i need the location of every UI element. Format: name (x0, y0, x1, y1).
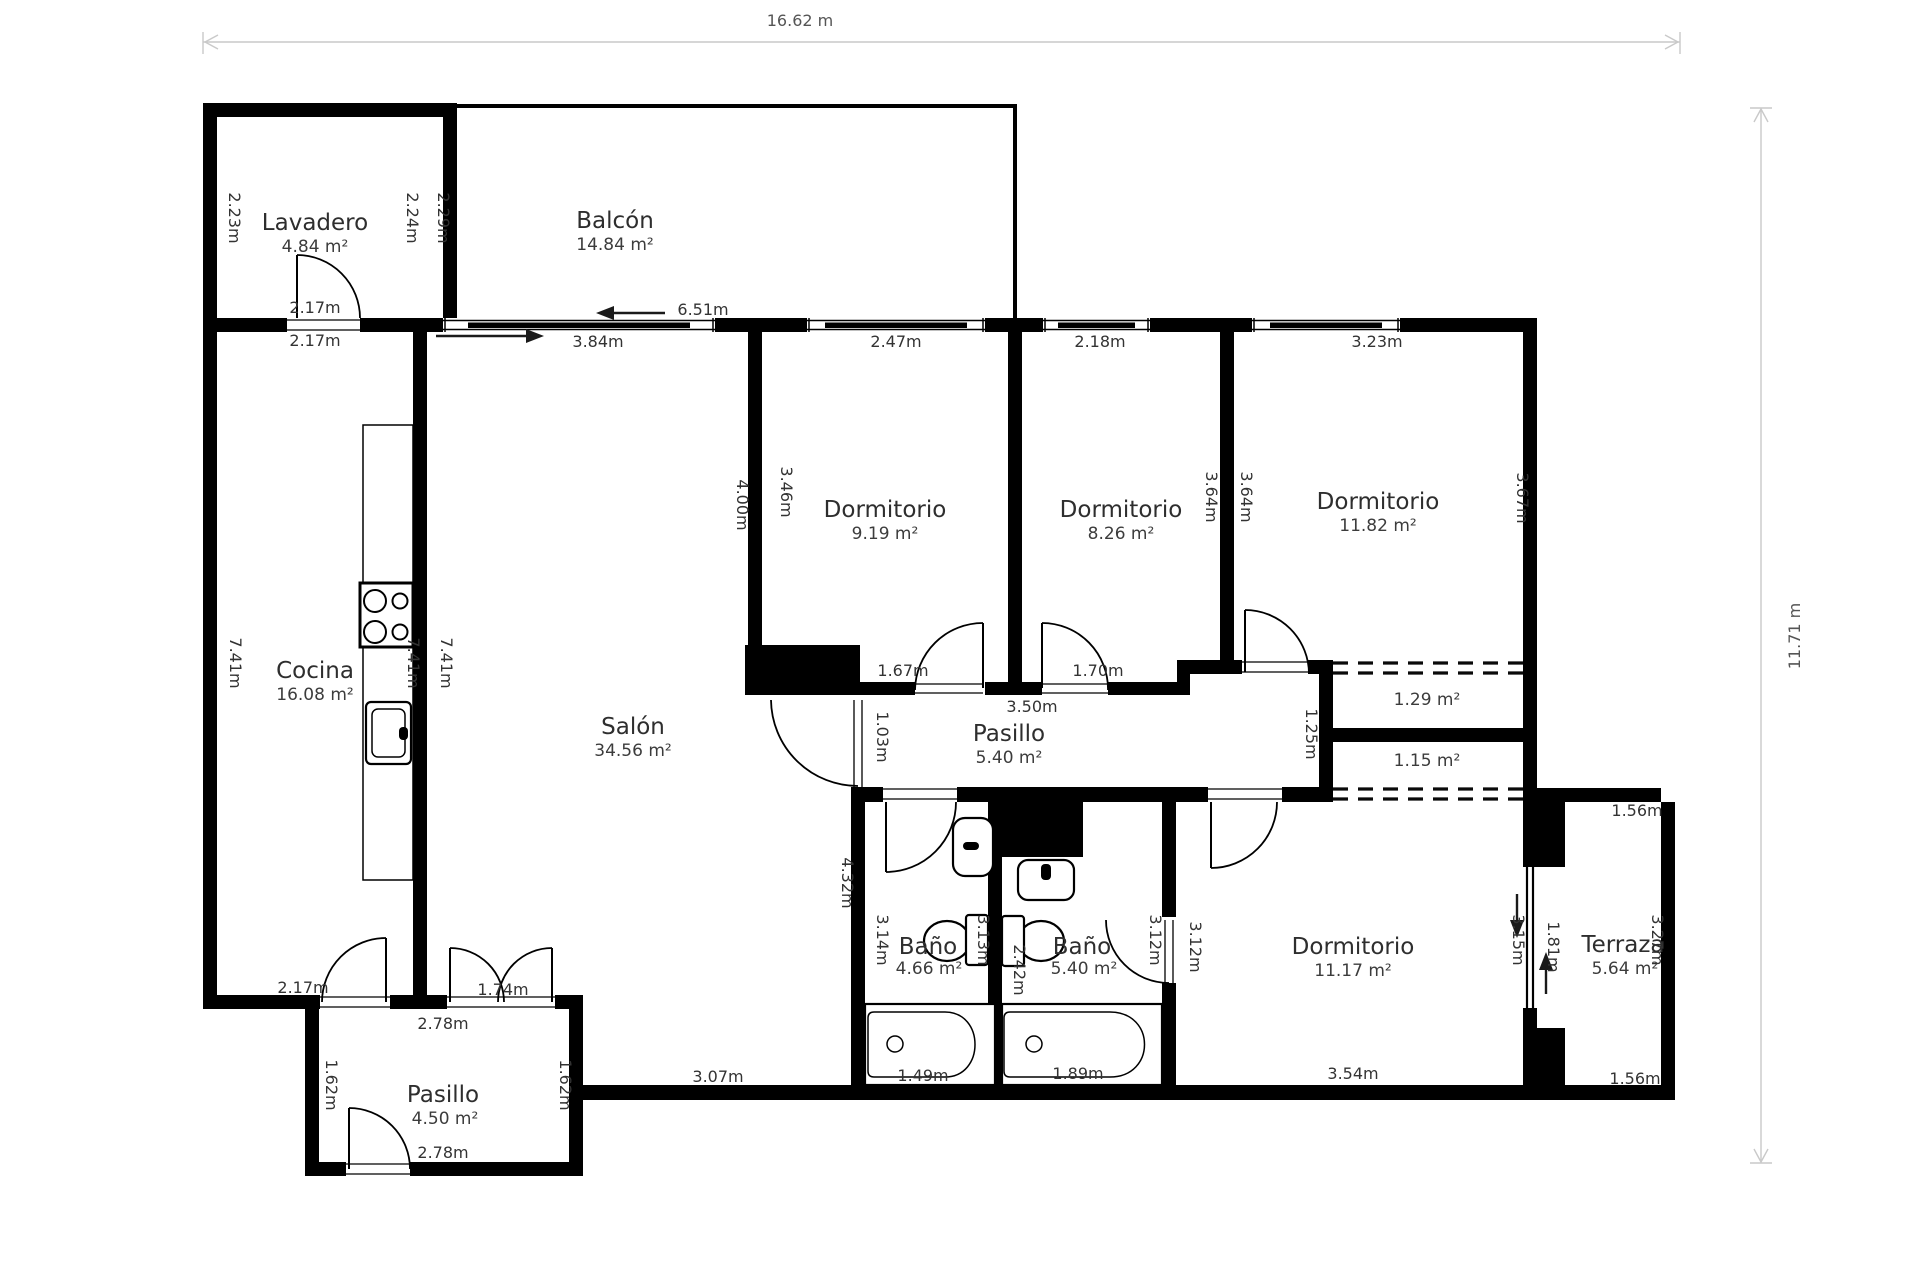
balcony-slide-arrow-right (436, 329, 544, 343)
window-salon-slider (443, 318, 715, 332)
dim-label: 7.41m (437, 637, 456, 688)
dim-label: 2.18m (1074, 332, 1125, 351)
dim-label: 3.64m (1237, 471, 1256, 522)
door-dormitorio-4 (1208, 789, 1282, 868)
room-area: 4.66 m² (896, 959, 963, 979)
window-dormitorio-1 (807, 318, 985, 332)
room-area: 9.19 m² (852, 524, 919, 544)
door-salon-pasillo (771, 700, 862, 787)
closet-area-label: 1.15 m² (1394, 751, 1461, 771)
floor-plan-canvas: 16.62 m 11.71 m (0, 0, 1920, 1280)
room-name: Cocina (276, 658, 354, 684)
room-label-pasillo-1: Pasillo5.40 m² (973, 721, 1045, 768)
room-name: Balcón (576, 208, 654, 234)
dim-label: 4.32m (838, 857, 857, 908)
room-labels: Lavadero4.84 m² Balcón14.84 m² Cocina16.… (262, 208, 1665, 1129)
room-name: Dormitorio (1060, 497, 1183, 523)
top-dimension-line (203, 32, 1680, 54)
room-label-balcon: Balcón14.84 m² (576, 208, 654, 255)
dim-label: 3.64m (1202, 471, 1221, 522)
room-label-salon: Salón34.56 m² (594, 714, 671, 761)
room-area: 4.84 m² (282, 237, 349, 257)
right-dimension-line (1750, 108, 1772, 1163)
balcony-slide-arrow-left (596, 306, 665, 320)
room-name: Dormitorio (824, 497, 947, 523)
window-lavadero (247, 103, 380, 117)
dim-label: 3.84m (572, 332, 623, 351)
room-label-lavadero: Lavadero4.84 m² (262, 210, 368, 257)
dim-label: 1.74m (477, 980, 528, 999)
room-area: 8.26 m² (1088, 524, 1155, 544)
balcony-railing-right (1013, 104, 1017, 318)
dim-label: 6.51m (677, 300, 728, 319)
dim-label: 1.81m (1544, 921, 1563, 972)
room-area: 5.40 m² (1051, 959, 1118, 979)
dim-label: 1.56m (1611, 801, 1662, 820)
dim-label: 3.67m (1513, 472, 1532, 523)
dim-label: 3.23m (1351, 332, 1402, 351)
room-label-bano-2: Baño5.40 m² (1051, 934, 1118, 979)
dim-label: 2.47m (870, 332, 921, 351)
room-area: 16.08 m² (276, 685, 353, 705)
dim-label: 2.23m (225, 192, 244, 243)
window-dormitorio-2 (1043, 318, 1150, 332)
floor-plan-page: 16.62 m 11.71 m (0, 0, 1920, 1280)
room-name: Baño (899, 934, 958, 960)
door-bano-1 (883, 789, 957, 872)
door-dormitorio-1 (915, 623, 983, 693)
door-entrance (346, 1108, 410, 1174)
room-label-dormitorio-3: Dormitorio11.82 m² (1317, 489, 1440, 536)
dim-label: 3.54m (1327, 1064, 1378, 1083)
dim-label: 3.15m (1509, 914, 1528, 965)
room-label-dormitorio-4: Dormitorio11.17 m² (1292, 934, 1415, 981)
dim-label: 1.62m (322, 1059, 341, 1110)
room-area: 34.56 m² (594, 741, 671, 761)
kitchen-sink (366, 702, 411, 764)
window-dormitorio-3 (1252, 318, 1400, 332)
dim-label: 1.56m (1609, 1069, 1660, 1088)
door-dormitorio-2 (1042, 623, 1108, 693)
dim-label: 1.62m (556, 1059, 575, 1110)
dim-label: 1.03m (873, 711, 892, 762)
room-name: Dormitorio (1317, 489, 1440, 515)
dim-label: 3.07m (692, 1067, 743, 1086)
dim-label: 2.17m (289, 331, 340, 350)
total-width-label: 16.62 m (767, 11, 833, 30)
dim-label: 2.17m (289, 298, 340, 317)
room-area: 14.84 m² (576, 235, 653, 255)
room-name: Pasillo (407, 1082, 479, 1108)
door-lavadero (287, 255, 360, 330)
total-height-label: 11.71 m (1785, 603, 1804, 669)
room-label-dormitorio-2: Dormitorio8.26 m² (1060, 497, 1183, 544)
dim-label: 7.41m (226, 637, 245, 688)
room-area: 5.40 m² (976, 748, 1043, 768)
balcony-railing-top (457, 104, 1017, 108)
dim-label: 1.25m (1302, 708, 1321, 759)
door-dormitorio-3 (1242, 610, 1309, 674)
dim-label: 2.78m (417, 1014, 468, 1033)
dim-label: 3.13m (974, 914, 993, 965)
room-label-cocina: Cocina16.08 m² (276, 658, 354, 705)
dim-label: 1.49m (897, 1066, 948, 1085)
room-name: Lavadero (262, 210, 368, 236)
room-area: 4.50 m² (412, 1109, 479, 1129)
dim-label: 2.42m (1010, 944, 1029, 995)
room-name: Pasillo (973, 721, 1045, 747)
bathroom-sink-2 (1018, 860, 1074, 900)
dim-label: 1.70m (1072, 661, 1123, 680)
dim-label: 3.12m (1146, 914, 1165, 965)
room-name: Salón (601, 714, 665, 740)
dim-label: 2.17m (277, 978, 328, 997)
dim-label: 7.41m (404, 637, 423, 688)
door-cocina (320, 938, 390, 1007)
room-label-bano-1: Baño4.66 m² (896, 934, 963, 979)
dim-label: 2.78m (417, 1143, 468, 1162)
room-name: Baño (1053, 934, 1112, 960)
room-area: 11.82 m² (1339, 516, 1416, 536)
room-label-dormitorio-1: Dormitorio9.19 m² (824, 497, 947, 544)
dim-label: 2.24m (403, 192, 422, 243)
dim-label: 1.67m (877, 661, 928, 680)
room-area: 11.17 m² (1314, 961, 1391, 981)
bathroom-sink-1 (953, 818, 993, 876)
room-label-pasillo-2: Pasillo4.50 m² (407, 1082, 479, 1129)
closet-area-label: 1.29 m² (1394, 690, 1461, 710)
dim-label: 3.12m (1186, 921, 1205, 972)
room-name: Dormitorio (1292, 934, 1415, 960)
dim-label: 4.00m (733, 479, 752, 530)
dim-label: 1.89m (1052, 1064, 1103, 1083)
dim-label: 2.29m (434, 192, 453, 243)
dim-label: 3.14m (873, 914, 892, 965)
dim-label: 3.27m (1648, 914, 1667, 965)
dim-label: 3.46m (777, 466, 796, 517)
dim-label: 3.50m (1006, 697, 1057, 716)
